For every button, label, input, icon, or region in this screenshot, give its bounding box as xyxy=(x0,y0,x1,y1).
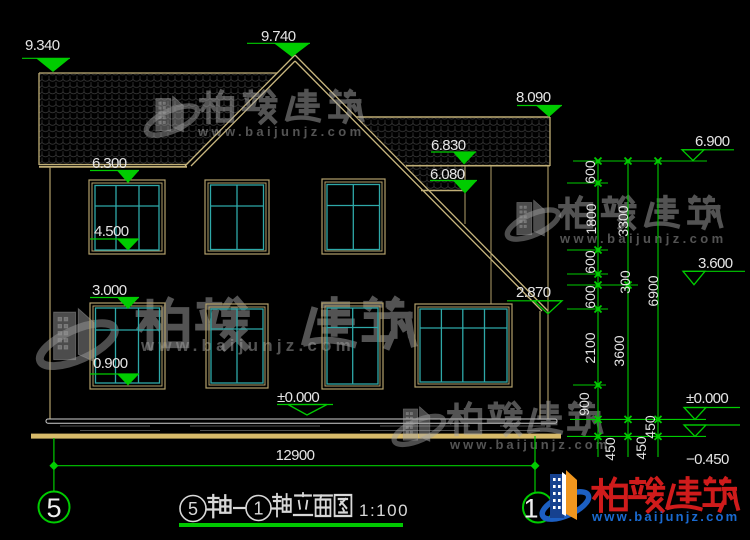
svg-text:5: 5 xyxy=(46,493,61,523)
svg-text:1800: 1800 xyxy=(583,203,599,234)
svg-text:8.090: 8.090 xyxy=(516,89,551,106)
svg-text:1:100: 1:100 xyxy=(359,501,409,520)
svg-text:5: 5 xyxy=(188,499,198,519)
svg-text:600: 600 xyxy=(582,250,598,274)
svg-text:3600: 3600 xyxy=(611,335,627,366)
svg-text:900: 900 xyxy=(576,392,592,416)
svg-text:3300: 3300 xyxy=(615,205,631,236)
svg-text:−0.450: −0.450 xyxy=(686,451,729,468)
svg-text:450: 450 xyxy=(602,437,618,461)
svg-text:6.900: 6.900 xyxy=(695,133,730,150)
svg-text:±0.000: ±0.000 xyxy=(277,389,319,406)
svg-text:450: 450 xyxy=(633,436,649,460)
svg-text:9.740: 9.740 xyxy=(261,28,296,45)
svg-text:450: 450 xyxy=(642,415,658,439)
svg-text:3.600: 3.600 xyxy=(698,255,733,272)
svg-text:1: 1 xyxy=(253,499,263,519)
svg-text:1: 1 xyxy=(523,494,538,524)
svg-text:3.000: 3.000 xyxy=(92,282,127,299)
svg-text:2.870: 2.870 xyxy=(516,284,551,301)
svg-text:6900: 6900 xyxy=(645,275,661,306)
svg-text:9.340: 9.340 xyxy=(25,37,60,54)
svg-text:0.900: 0.900 xyxy=(93,355,128,372)
svg-text:2100: 2100 xyxy=(582,332,598,363)
svg-text:www.baijunjz.com: www.baijunjz.com xyxy=(591,509,739,524)
svg-text:600: 600 xyxy=(582,160,598,184)
svg-text:12900: 12900 xyxy=(276,447,315,464)
svg-text:4.500: 4.500 xyxy=(94,223,129,240)
svg-text:6.300: 6.300 xyxy=(92,155,127,172)
svg-text:±0.000: ±0.000 xyxy=(686,390,728,407)
svg-text:www.baijunjz.com: www.baijunjz.com xyxy=(449,437,610,452)
svg-text:www.baijunjz.com: www.baijunjz.com xyxy=(140,336,355,355)
svg-text:300: 300 xyxy=(617,270,633,294)
svg-text:600: 600 xyxy=(582,285,598,309)
svg-text:www.baijunjz.com: www.baijunjz.com xyxy=(197,124,365,139)
